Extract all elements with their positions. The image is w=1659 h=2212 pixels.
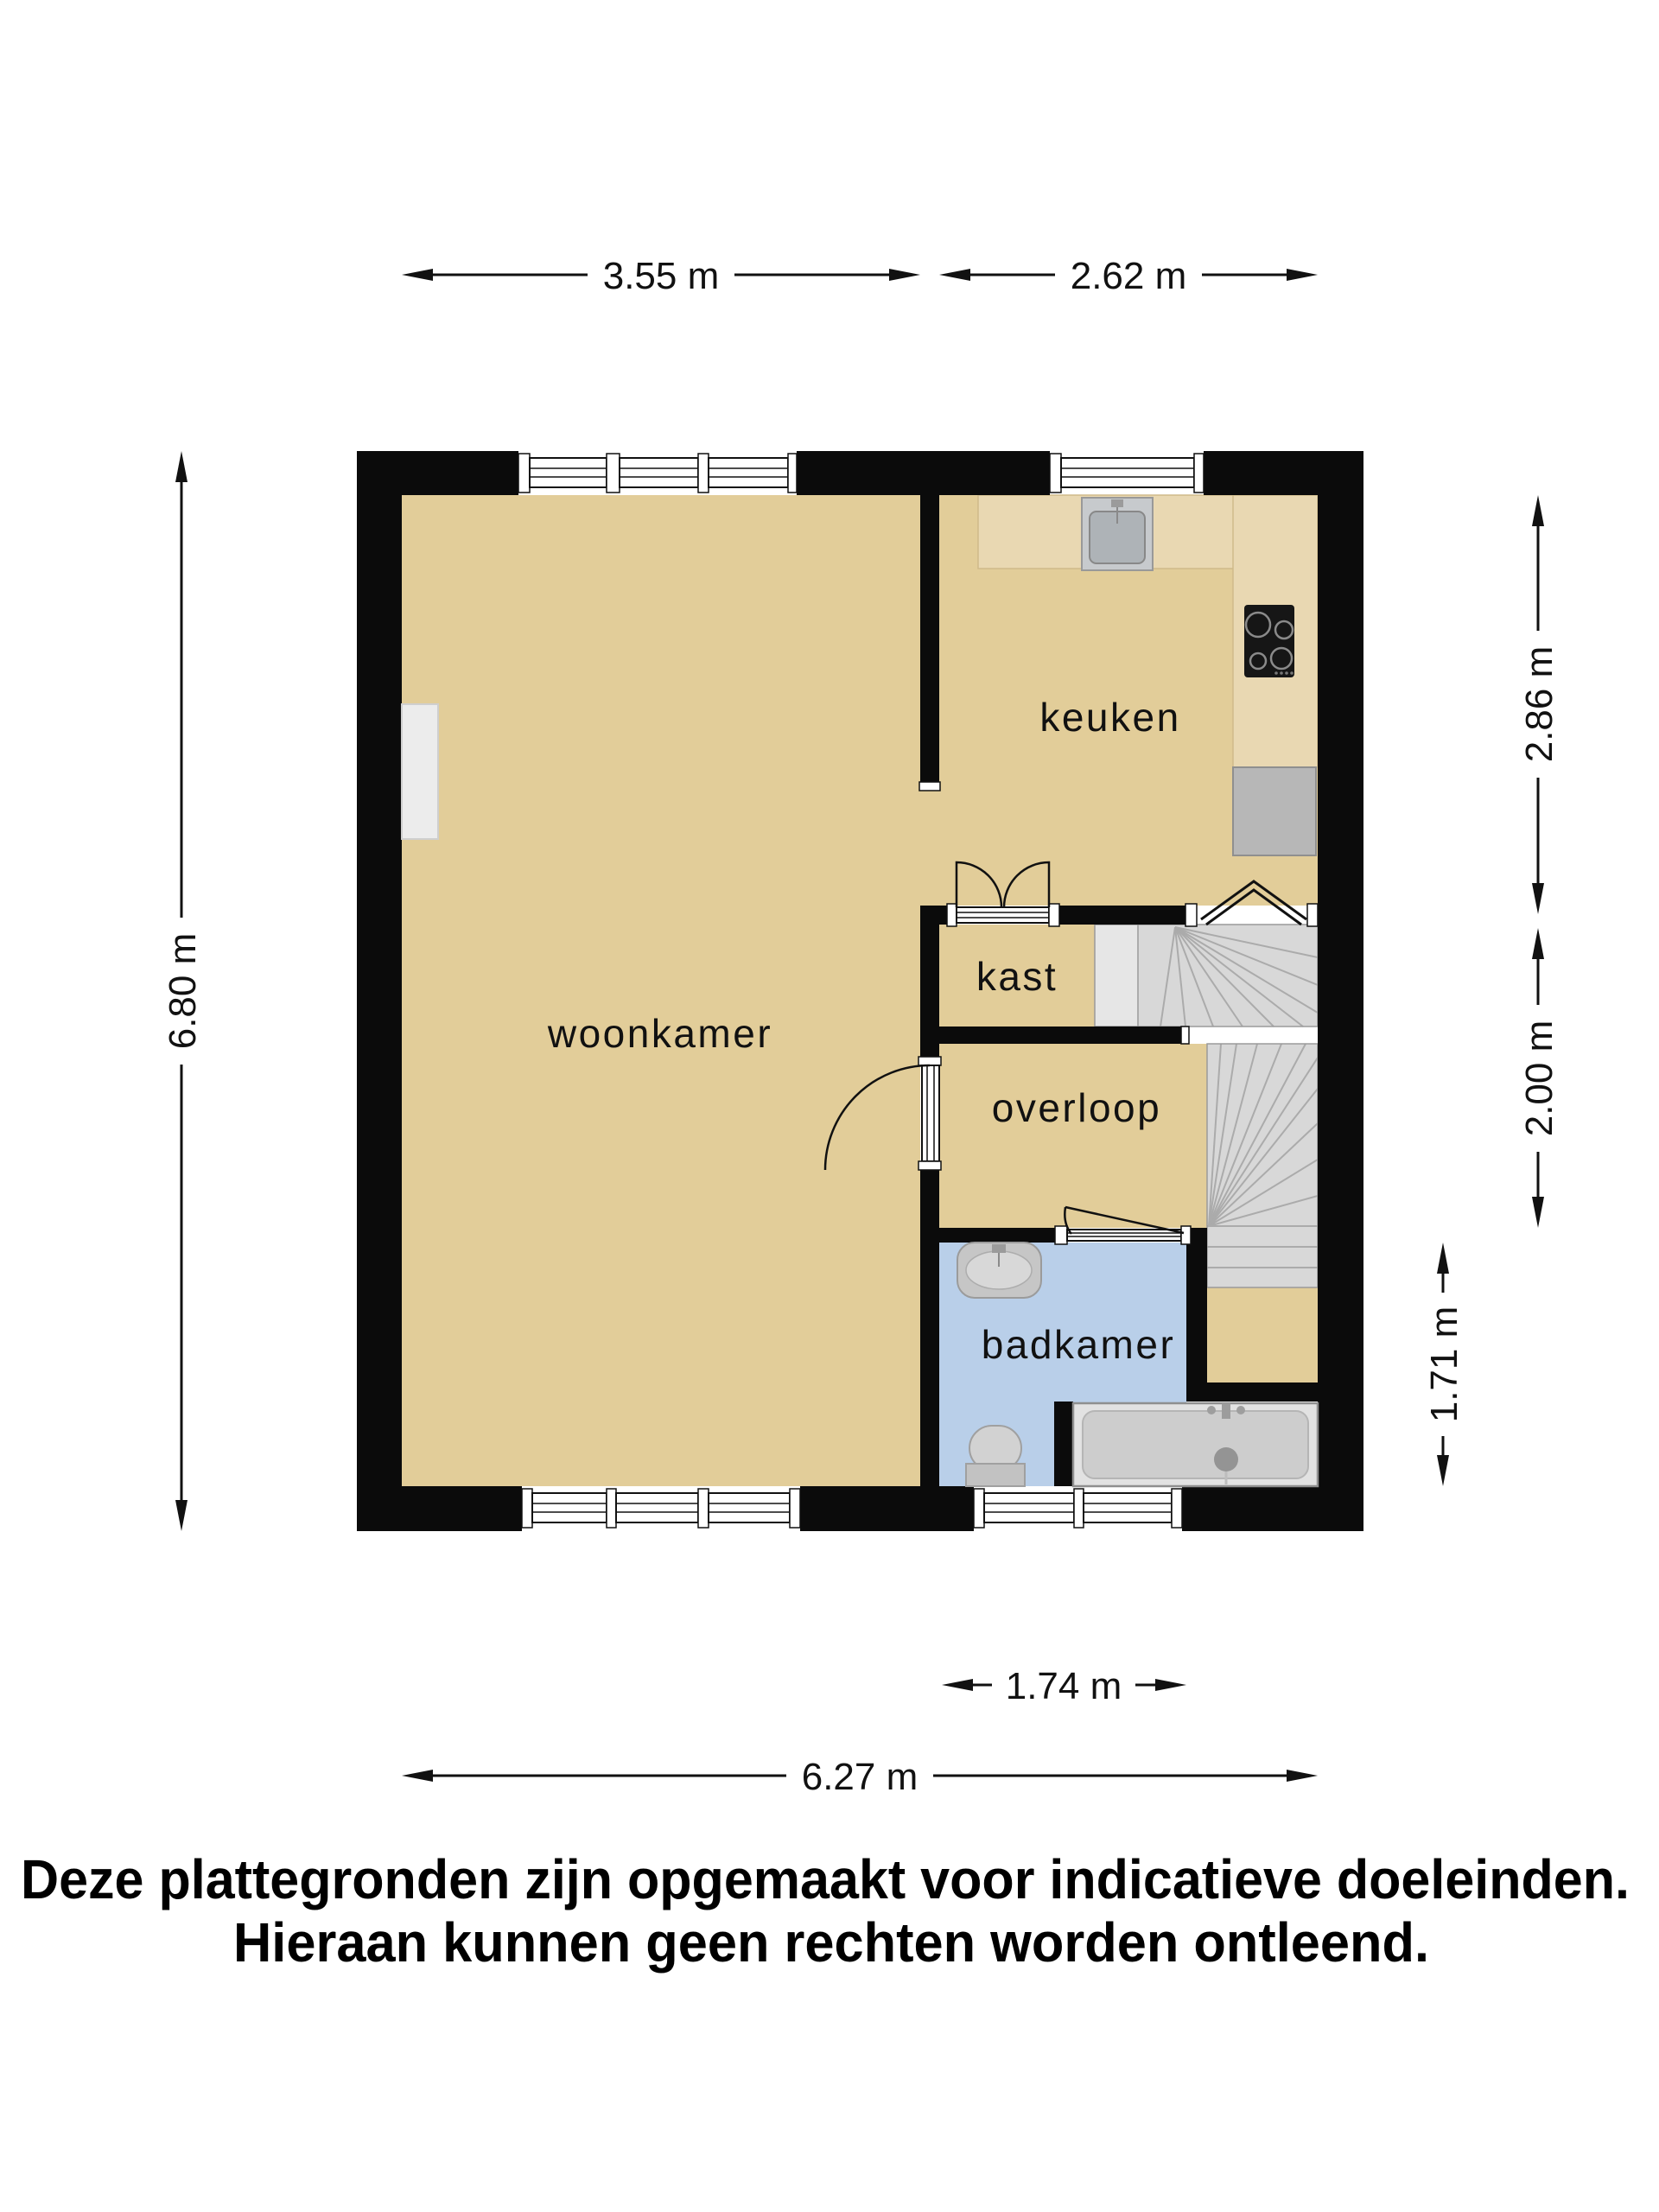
bathtub-icon [1073,1403,1318,1486]
room-label-kast: kast [976,954,1058,999]
wall-top-middle-block [797,451,1050,495]
dimension-right-landing: 2.00 m [1518,928,1560,1228]
wall-keuken-kast [1059,906,1185,925]
wall-kast-overloop [920,1027,1186,1044]
dimension-label: 1.74 m [1006,1665,1122,1707]
stairs-lower [1207,1044,1318,1287]
washbasin-icon [957,1243,1041,1298]
niche [402,704,438,839]
wall-woonkamer-keuken [920,495,939,791]
room-label-keuken: keuken [1039,695,1180,740]
overloop-floor [939,1044,1207,1228]
kitchen-sink-icon [1082,498,1153,570]
kitchen-appliance-icon [1233,767,1316,855]
stair-side-floor [1207,1287,1318,1382]
window-keuken-top [1050,454,1204,493]
disclaimer: Deze plattegronden zijn opgemaakt voor i… [21,1848,1630,1974]
wall-cap [1181,1027,1189,1044]
dimension-label: 2.62 m [1071,255,1187,297]
woonkamer-floor [402,495,920,1486]
dimension-label: 2.86 m [1518,646,1560,763]
wall-woonkamer-badkamer [920,1170,939,1486]
dimension-left: 6.80 m [162,451,204,1531]
room-label-overloop: overloop [992,1085,1161,1130]
dimension-label: 1.71 m [1423,1306,1465,1423]
dimension-label: 3.55 m [603,255,720,297]
wall-overloop-badkamer [1191,1228,1207,1243]
dimension-right-bathroom: 1.71 m [1423,1243,1465,1486]
cooktop-icon [1244,605,1294,677]
wall-left [357,451,402,1531]
wall-bathtub-stub [1054,1402,1073,1486]
dimension-top-right: 2.62 m [939,255,1318,297]
room-label-badkamer: badkamer [982,1322,1176,1367]
dimension-bottom-total: 6.27 m [402,1756,1318,1798]
toilet-icon [966,1426,1025,1486]
disclaimer-line2: Hieraan kunnen geen rechten worden ontle… [233,1911,1429,1974]
wall-bottom-right-block [1182,1486,1363,1531]
wall-bottom-middle-block [800,1486,974,1531]
wall-badkamer-stairs [1186,1243,1207,1382]
window-badkamer-bottom [974,1489,1182,1528]
dimension-label: 6.27 m [802,1756,918,1798]
window-woonkamer-bottom [522,1489,800,1528]
floor-plan: woonkamer keuken kast overloop badkamer … [0,0,1659,2212]
dimension-right-kitchen: 2.86 m [1518,495,1560,914]
dimension-label: 2.00 m [1518,1020,1560,1137]
wall-right [1318,451,1363,1531]
dimension-bottom-bathroom: 1.74 m [942,1665,1186,1707]
wall-keuken-kast [939,906,947,925]
wall-cap [919,782,940,791]
dimension-top-left: 3.55 m [402,255,920,297]
room-label-woonkamer: woonkamer [547,1011,772,1056]
stairs-upper [1095,925,1318,1027]
wall-overloop-badkamer [939,1228,1055,1243]
disclaimer-line1: Deze plattegronden zijn opgemaakt voor i… [21,1848,1630,1910]
dimension-label: 6.80 m [162,933,204,1050]
wall-bathtub-alcove [1186,1382,1318,1402]
passage-floor [920,791,939,906]
window-woonkamer-top [518,454,797,493]
wall-bottom-left-block [357,1486,522,1531]
